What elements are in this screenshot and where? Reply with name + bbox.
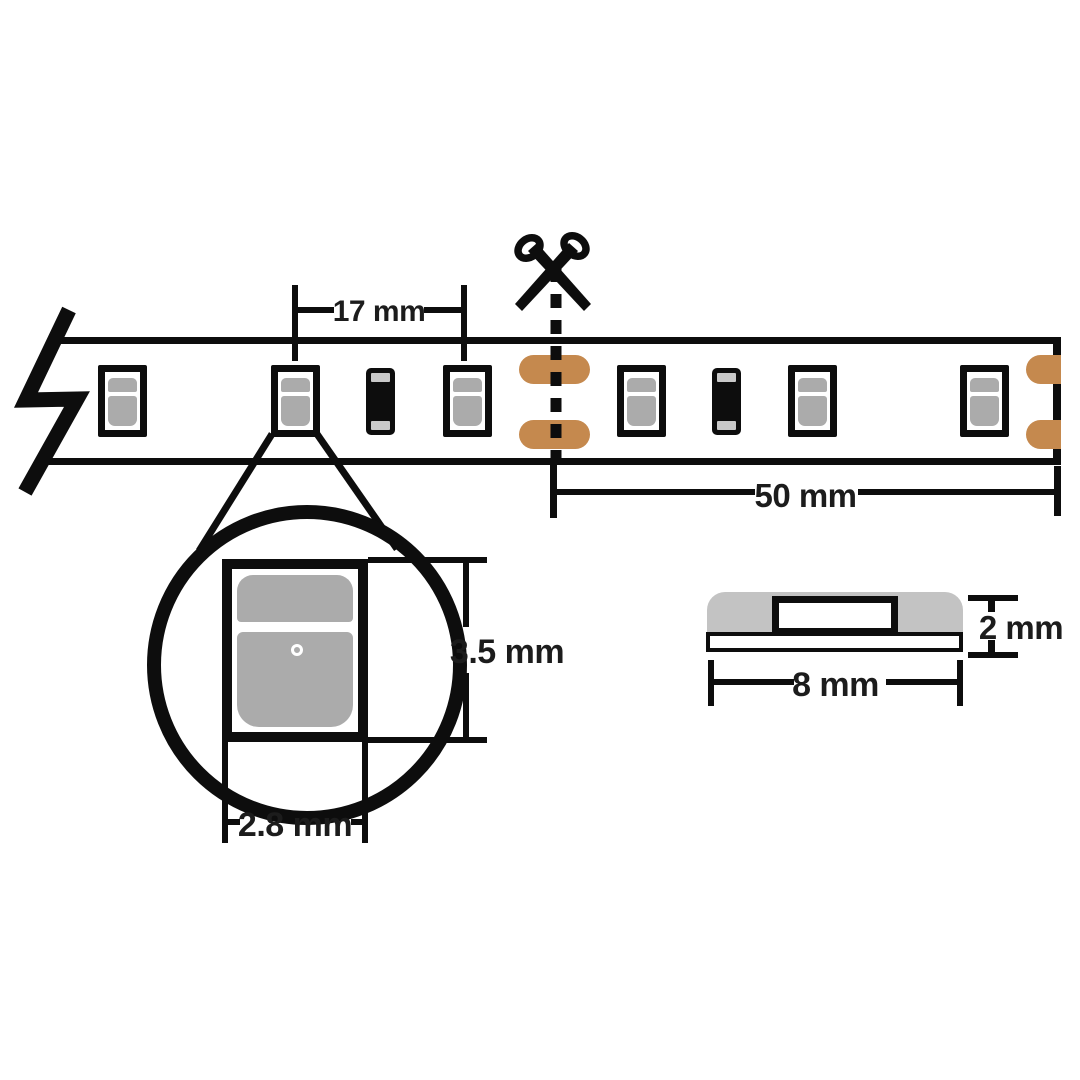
copper-pad [1026,420,1061,449]
led-cathode-band [970,378,999,392]
magnified-led-dot [291,644,303,656]
copper-pad [519,355,590,384]
dim-led-width-extension-right [362,742,368,843]
dim-label-cut-length: 50 mm [557,479,1054,514]
resistor-terminal [717,421,736,430]
magnified-led-emitter [237,632,353,727]
dim-label-strip-width: 8 mm [714,668,957,704]
led-chip [617,365,666,437]
resistor-terminal [717,373,736,382]
dim-led-height-line-upper [463,557,469,627]
solder-pads [519,355,590,449]
dim-led-height-line-lower [463,673,469,743]
led-emitter [627,396,656,426]
led-cathode-band [627,378,656,392]
led-cathode-band [798,378,827,392]
led-chip [443,365,492,437]
profile-pcb-base [706,632,963,652]
profile-led-chip [772,596,898,635]
led-cathode-band [453,378,482,392]
led-emitter [970,396,999,426]
strip-top-edge [48,337,1060,344]
diagram-canvas: 17 mm 50 mm 3.5 mm 2.8 mm 2 mm 8 mm [0,0,1080,1080]
dim-strip-width-tick-right [957,660,963,706]
dim-cut-length-tick-left [550,461,557,518]
dim-label-led-pitch: 17 mm [294,296,464,328]
magnified-led-chip [222,559,368,742]
dim-label-led-height: 3.5 mm [447,635,567,671]
led-emitter [108,396,137,426]
dim-led-width-extension-left [222,742,228,843]
dim-label-thickness: 2 mm [971,611,1071,646]
resistor [712,368,741,435]
led-chip [788,365,837,437]
dim-label-led-width: 2.8 mm [234,808,356,844]
dim-thickness-bar-bottom [968,652,1018,658]
dim-led-height-tick-bottom [368,737,487,743]
scissors-icon [514,232,591,311]
resistor [366,368,395,435]
led-chip [271,365,320,437]
led-cathode-band [281,378,310,392]
led-chip [960,365,1009,437]
copper-pad [519,420,590,449]
magnified-led-cathode-band [237,575,353,622]
led-cathode-band [108,378,137,392]
resistor-terminal [371,421,390,430]
led-emitter [798,396,827,426]
resistor-terminal [371,373,390,382]
copper-pad [1026,355,1061,384]
led-emitter [281,396,310,426]
solder-pads-end [1026,355,1061,449]
led-emitter [453,396,482,426]
dim-cut-length-tick-right [1054,466,1061,516]
led-chip [98,365,147,437]
dim-led-height-tick-top [368,557,487,563]
